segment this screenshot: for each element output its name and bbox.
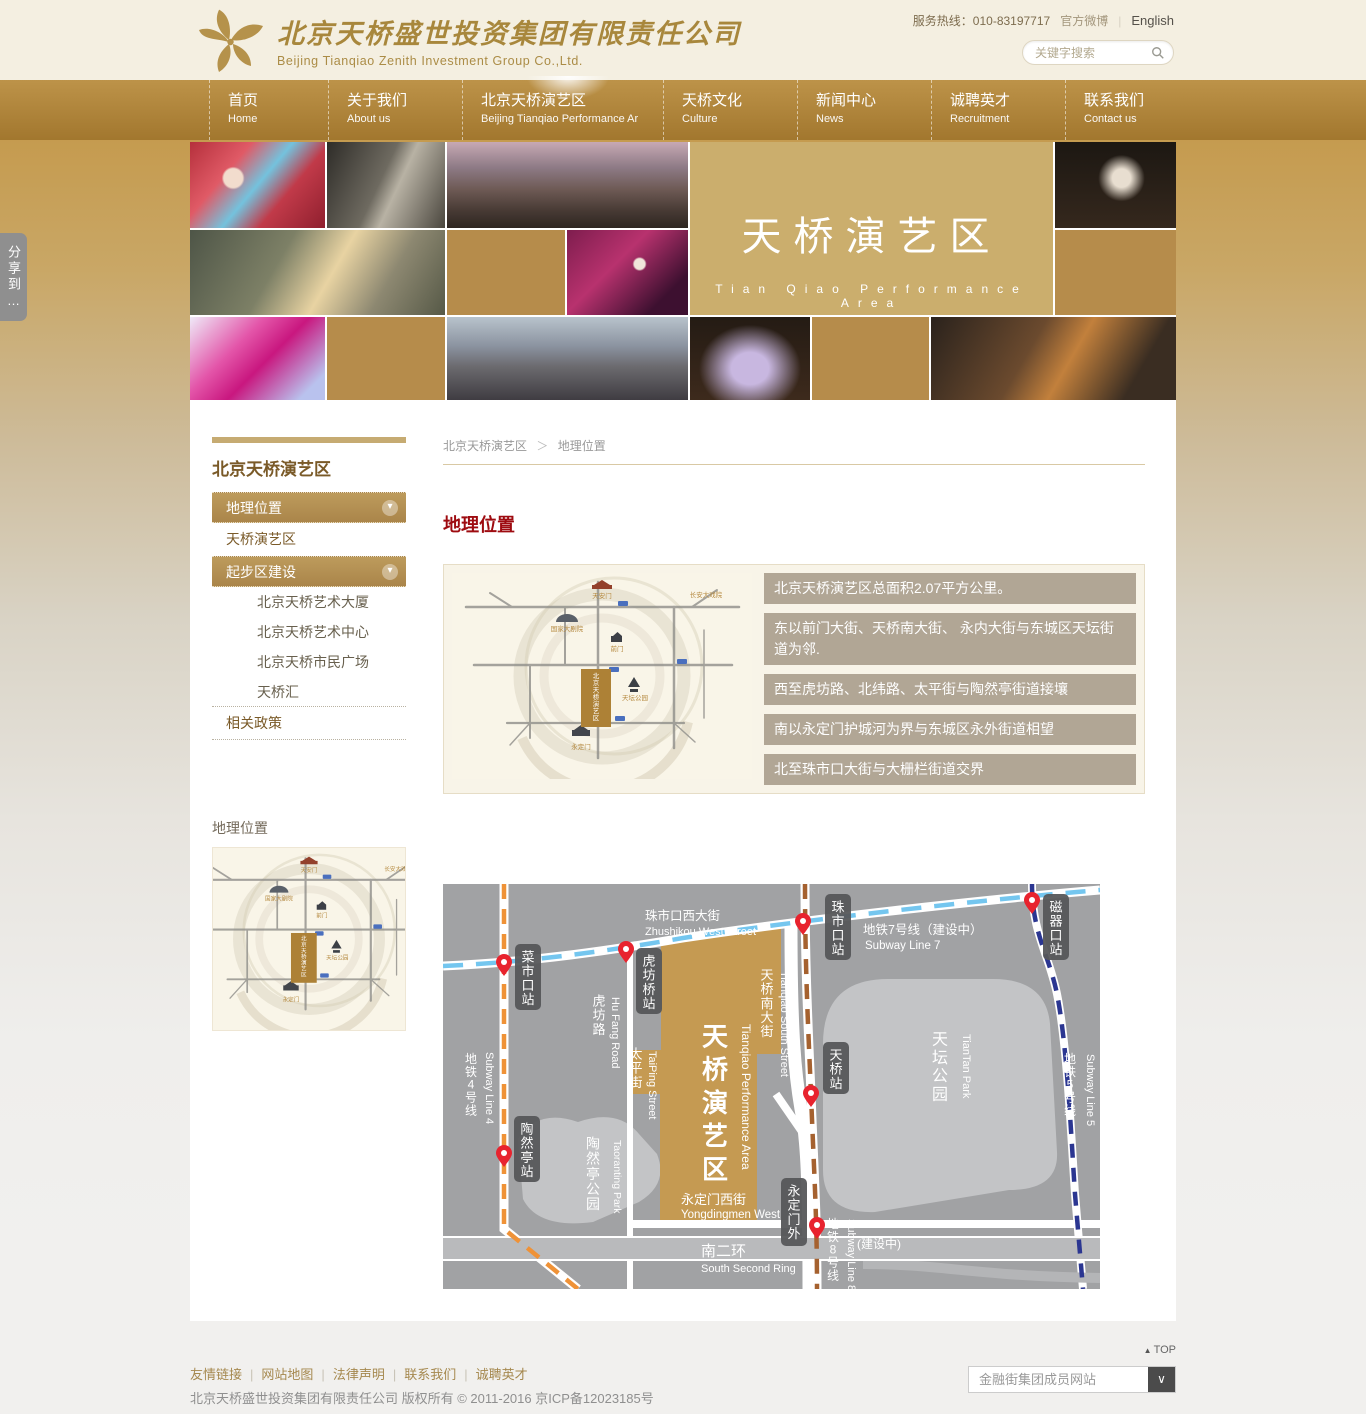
company-logo[interactable]: 北京天桥盛世投资集团有限责任公司 Beijing Tianqiao Zenith…: [195, 4, 741, 76]
dropdown-selected-value: 金融街集团成员网站: [969, 1367, 1148, 1392]
station-label-zhushikou: 珠市口站: [831, 900, 844, 957]
subway-line8-note: (建设中): [857, 1236, 901, 1251]
sidebar-item-art-tower[interactable]: 北京天桥艺术大厦: [212, 587, 406, 617]
park-label-tiantan-cn: 天坛公园: [932, 1031, 948, 1103]
banner-image-singer: [327, 142, 445, 228]
banner-image-street2: [447, 317, 688, 400]
footer-link-sitemap[interactable]: 网站地图: [261, 1367, 313, 1382]
station-label-tianqiao: 天桥站: [829, 1048, 842, 1091]
sidebar-item-tianqiaohui[interactable]: 天桥汇: [212, 677, 406, 707]
banner-title-en: Tian Qiao Performance Area: [690, 282, 1053, 310]
header: 北京天桥盛世投资集团有限责任公司 Beijing Tianqiao Zenith…: [0, 0, 1366, 80]
nav-item-contact[interactable]: 联系我们Contact us: [1065, 80, 1176, 140]
company-name-cn: 北京天桥盛世投资集团有限责任公司: [277, 12, 741, 51]
breadcrumb: 北京天桥演艺区 ＞ 地理位置: [443, 437, 1145, 465]
fact-item: 北京天桥演艺区总面积2.07平方公里。: [764, 573, 1136, 604]
street-label-taiping-cn: 太平街: [629, 1047, 642, 1090]
sidebar-item-performance-area[interactable]: 天桥演艺区: [212, 523, 406, 556]
footer-links: 友情链接|网站地图|法律声明|联系我们|诚聘英才: [190, 1364, 528, 1383]
park-label-taoranting-en: Taoranting Park: [611, 1140, 623, 1214]
search-icon[interactable]: [1151, 46, 1165, 60]
page-title: 地理位置: [443, 511, 1145, 537]
street-label-south-ring-cn: 南二环: [701, 1243, 746, 1260]
language-link[interactable]: English: [1131, 13, 1174, 28]
nav-item-culture[interactable]: 天桥文化Culture: [663, 80, 797, 140]
share-tab[interactable]: 分享到…: [0, 233, 27, 321]
banner-image-barscene: [567, 230, 688, 315]
zone-label-performance-en: Tianqiao Performance Area: [739, 1024, 753, 1170]
banner-image-night-roofs: [931, 317, 1176, 400]
station-label-caishikou: 菜市口站: [521, 950, 534, 1007]
breadcrumb-parent[interactable]: 北京天桥演艺区: [443, 439, 527, 453]
nav-item-about[interactable]: 关于我们About us: [328, 80, 462, 140]
sidebar-title: 北京天桥演艺区: [212, 455, 406, 480]
content-card: 天桥演艺区 Tian Qiao Performance Area 北京天桥演艺区…: [190, 142, 1176, 1321]
banner-gold-block: [447, 230, 565, 315]
station-label-hufangqiao: 虎坊桥站: [642, 954, 655, 1011]
breadcrumb-separator: ＞: [536, 439, 548, 453]
station-label-ciqikou: 磁器口站: [1049, 900, 1062, 957]
header-divider: |: [1118, 14, 1121, 28]
street-label-tianqiao-south-cn: 天桥南大街: [760, 968, 773, 1039]
back-to-top[interactable]: ▲TOP: [1144, 1344, 1176, 1356]
share-label: 分享到…: [4, 245, 23, 311]
copyright: 北京天桥盛世投资集团有限责任公司 版权所有 © 2011-2016 京ICP备1…: [190, 1388, 654, 1407]
footer: ▲TOP 友情链接|网站地图|法律声明|联系我们|诚聘英才 北京天桥盛世投资集团…: [190, 1321, 1176, 1414]
service-hotline: 服务热线：010-83197717: [913, 12, 1050, 29]
fact-item: 南以永定门护城河为界与东城区永外街道相望: [764, 714, 1136, 745]
search-input[interactable]: [1035, 46, 1151, 60]
weibo-link[interactable]: 官方微博: [1060, 12, 1108, 29]
station-label-taoranting: 陶然亭站: [520, 1122, 533, 1179]
sidebar-item-location[interactable]: 地理位置 ▾: [212, 492, 406, 523]
zone-label-performance-cn: 天桥演艺区: [702, 1021, 729, 1184]
banner-gold-block: [1055, 230, 1176, 315]
search-box[interactable]: [1022, 40, 1174, 65]
sidebar-item-art-center[interactable]: 北京天桥艺术中心: [212, 617, 406, 647]
banner-image-opera: [190, 142, 325, 228]
chevron-down-icon[interactable]: ∨: [1148, 1367, 1175, 1392]
nav-item-news[interactable]: 新闻中心News: [797, 80, 931, 140]
footer-link-legal[interactable]: 法律声明: [333, 1367, 385, 1382]
sidebar-item-policies[interactable]: 相关政策: [212, 707, 406, 740]
fact-item: 东以前门大街、天桥南大街、 永内大街与东城区天坛街道为邻.: [764, 613, 1136, 665]
member-sites-dropdown[interactable]: 金融街集团成员网站 ∨: [968, 1366, 1176, 1393]
banner-mosaic: 天桥演艺区 Tian Qiao Performance Area: [190, 142, 1176, 400]
main-nav: 首页Home 关于我们About us 北京天桥演艺区Beijing Tianq…: [0, 80, 1366, 140]
footer-link-recruit[interactable]: 诚聘英才: [476, 1367, 528, 1382]
street-label-yongdingmen-west-cn: 永定门西街: [681, 1192, 746, 1207]
subway-line5-label-en: Subway Line 5: [1084, 1054, 1096, 1126]
banner-title-cn: 天桥演艺区: [690, 204, 1053, 262]
sidebar: 北京天桥演艺区 地理位置 ▾ 天桥演艺区 起步区建设 ▾ 北京天桥艺术大厦 北京…: [212, 437, 406, 1289]
subway-line4-label-en: Subway Line 4: [483, 1052, 495, 1124]
fact-item: 西至虎坊路、北纬路、太平街与陶然亭街道接壤: [764, 674, 1136, 705]
subway-line8-label-en: Subway Line 8: [845, 1219, 857, 1289]
orchid-logo-icon: [195, 4, 267, 76]
footer-link-contact[interactable]: 联系我们: [404, 1367, 456, 1382]
banner-image-pink-dancer: [190, 317, 325, 400]
park-label-tiantan-en: TianTan Park: [960, 1034, 972, 1099]
sidebar-item-startup-zone[interactable]: 起步区建设 ▾: [212, 556, 406, 587]
nav-item-performance-area[interactable]: 北京天桥演艺区Beijing Tianqiao Performance Ar: [462, 80, 663, 140]
street-label-zhushikou-cn: 珠市口西大街: [645, 908, 720, 923]
banner-image-ballet: [1055, 142, 1176, 228]
street-label-tianqiao-south-en: Tianqiao South Street: [778, 971, 790, 1077]
subway-line7-label-cn: 地铁7号线（建设中）: [863, 922, 982, 937]
banner-title-block: 天桥演艺区 Tian Qiao Performance Area: [690, 142, 1053, 315]
sidebar-item-citizen-square[interactable]: 北京天桥市民广场: [212, 647, 406, 677]
sidebar-location-thumbnail: [212, 847, 406, 1031]
artistic-location-map: [452, 573, 752, 779]
facts-box: 北京天桥演艺区总面积2.07平方公里。 东以前门大街、天桥南大街、 永内大街与东…: [443, 564, 1145, 794]
street-label-taiping-en: TaiPing Street: [646, 1051, 658, 1119]
park-label-taoranting-cn: 陶然亭公园: [586, 1136, 600, 1212]
sidebar-map-caption: 地理位置: [212, 818, 406, 838]
nav-item-home[interactable]: 首页Home: [209, 80, 328, 140]
subway-line7-label-en: Subway Line 7: [865, 940, 940, 952]
chevron-down-icon: ▾: [382, 500, 398, 516]
banner-image-courtyard: [190, 230, 445, 315]
nav-item-recruitment[interactable]: 诚聘英才Recruitment: [931, 80, 1065, 140]
street-label-zhushikou-en: Zhushikou West Street: [645, 926, 756, 938]
street-label-hufang-cn: 虎坊路: [592, 994, 605, 1037]
main-content: 北京天桥演艺区 ＞ 地理位置 地理位置 北京天桥演艺区总面积2.07平方公里。 …: [443, 437, 1145, 1289]
sidebar-top-bar: [212, 437, 406, 443]
station-label-yongdingmenwai: 永定门外: [787, 1184, 800, 1241]
company-name-en: Beijing Tianqiao Zenith Investment Group…: [277, 54, 741, 68]
street-label-south-ring-en: South Second Ring: [701, 1263, 796, 1275]
chevron-down-icon: ▾: [382, 564, 398, 580]
banner-image-stage-dancers: [690, 317, 810, 400]
street-label-yongdingmen-west-en: Yongdingmen West: [681, 1209, 781, 1221]
subway-location-map: 珠市口西大街 Zhushikou West Street 地铁7号线（建设中） …: [443, 884, 1100, 1289]
up-triangle-icon: ▲: [1144, 1346, 1152, 1355]
breadcrumb-current: 地理位置: [558, 439, 606, 453]
banner-image-street: [447, 142, 688, 228]
banner-gold-block: [327, 317, 445, 400]
footer-link-friends[interactable]: 友情链接: [190, 1367, 242, 1382]
street-label-hufang-en: Hu Fang Road: [609, 997, 621, 1069]
banner-gold-block: [812, 317, 929, 400]
fact-item: 北至珠市口大街与大栅栏街道交界: [764, 754, 1136, 785]
